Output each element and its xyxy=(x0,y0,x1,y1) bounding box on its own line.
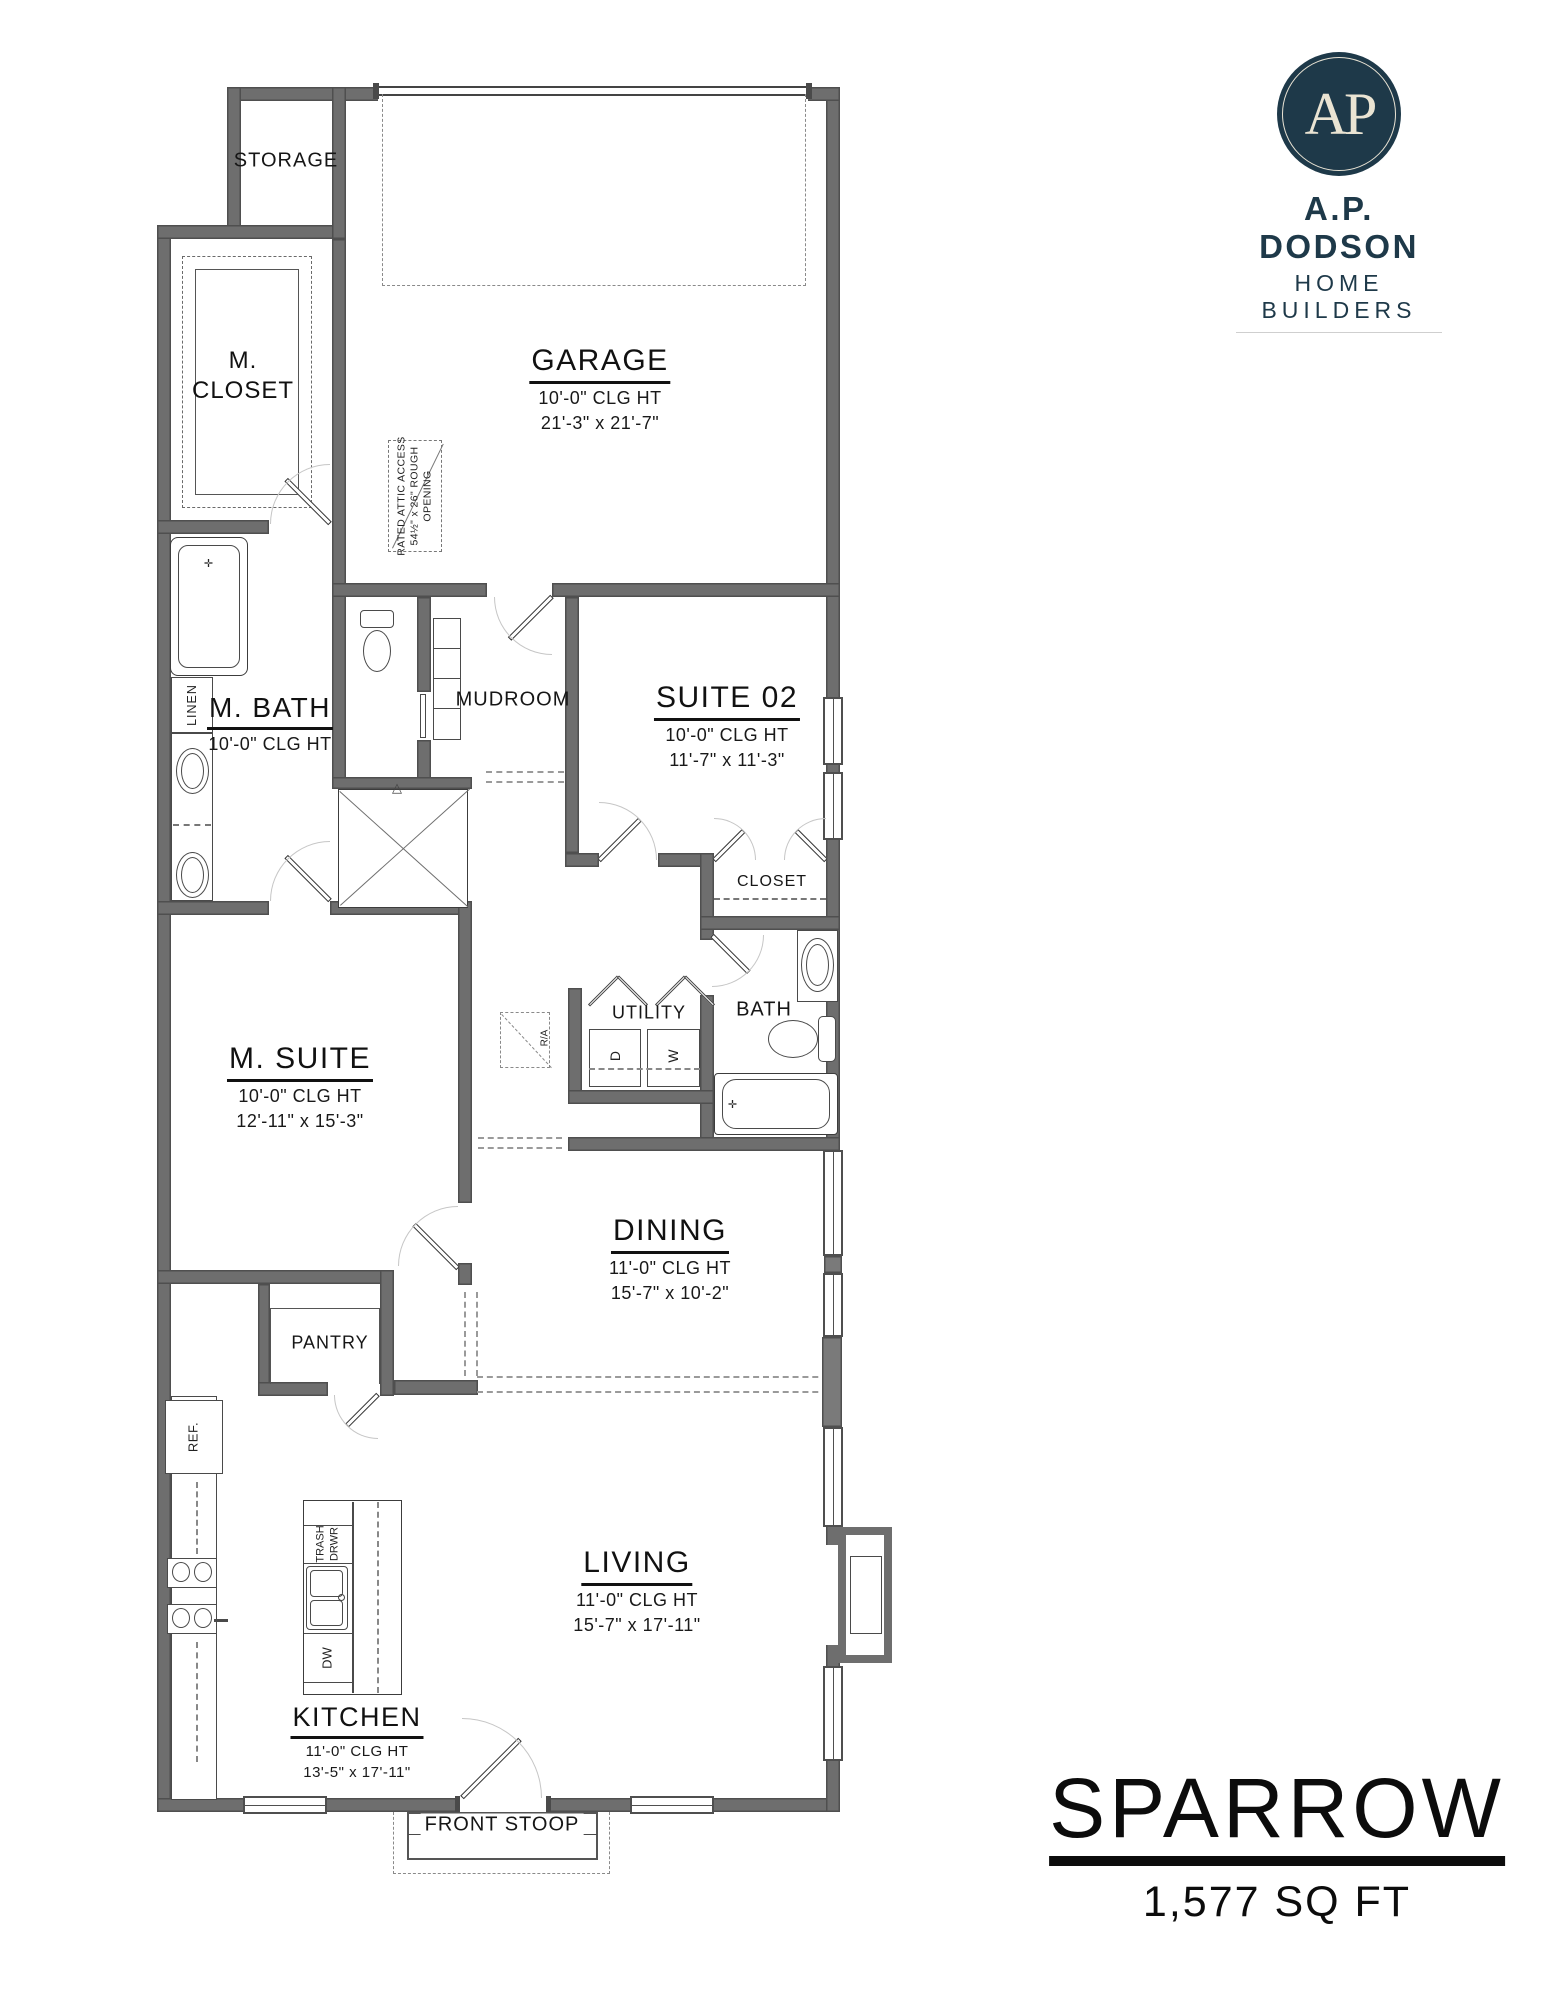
wall-utility-left xyxy=(568,988,582,1104)
storage-label: STORAGE xyxy=(234,150,338,173)
plan-title-underline xyxy=(1049,1856,1505,1866)
dining-window-2 xyxy=(823,1273,843,1337)
living-label: LIVING 11'-0" CLG HT 15'-7" x 17'-11" xyxy=(573,1546,700,1636)
kitchen-dining-dash2 xyxy=(476,1292,478,1376)
plan-title-block: SPARROW 1,577 SQ FT xyxy=(1049,1766,1505,1927)
dishwasher-label: DW xyxy=(320,1647,335,1669)
kitchen-label: KITCHEN 11'-0" CLG HT 13'-5" x 17'-11" xyxy=(290,1702,423,1781)
dining-window-mullion xyxy=(824,1256,842,1273)
range-handle xyxy=(214,1619,228,1622)
right-wall-pier xyxy=(822,1337,842,1427)
range-burner-3 xyxy=(172,1608,190,1628)
wall-garage-bottom-left xyxy=(332,583,487,597)
msuite-dimensions: 12'-11" x 15'-3" xyxy=(227,1111,373,1132)
island-div-3 xyxy=(304,1633,352,1634)
living-ceiling: 11'-0" CLG HT xyxy=(573,1590,700,1611)
mbath-label: M. BATH 10'-0" CLG HT xyxy=(207,692,333,755)
bath-sink-inner xyxy=(806,944,829,986)
trash-label-line2: DRWR xyxy=(328,1525,342,1562)
kitchen-ceiling: 11'-0" CLG HT xyxy=(290,1743,423,1760)
dining-window-1 xyxy=(823,1150,843,1256)
mbath-sink-1-inner xyxy=(181,753,204,789)
wall-mbath-bottom-left xyxy=(157,901,269,915)
wall-bath-left-lower xyxy=(700,995,714,1151)
linen-label: LINEN xyxy=(185,684,199,726)
bath-tub-faucet-icon: ✛ xyxy=(727,1099,740,1108)
wall-suite02-bottom-a xyxy=(565,853,599,867)
wall-suite02-left xyxy=(565,597,579,853)
front-stoop-label: FRONT STOOP xyxy=(421,1814,584,1837)
island-div-4 xyxy=(304,1682,352,1683)
island-dash xyxy=(377,1502,379,1693)
garage-label: GARAGE 10'-0" CLG HT 21'-3" x 21'-7" xyxy=(529,344,670,434)
mcloset-line1: M. xyxy=(192,346,294,376)
mbath-toilet-bowl xyxy=(363,630,391,672)
refrigerator-label: REF. xyxy=(186,1422,201,1452)
range-burner-4 xyxy=(194,1608,212,1628)
bath-label: BATH xyxy=(736,999,792,1022)
mudroom-hall-opening-dash1 xyxy=(486,771,564,773)
mbath-sink-2-inner xyxy=(181,857,204,893)
closet-door-right-arc xyxy=(784,818,826,860)
msuite-ceiling: 10'-0" CLG HT xyxy=(227,1086,373,1107)
bath-toilet-tank xyxy=(818,1016,836,1062)
bath-toilet-bowl xyxy=(768,1020,818,1058)
mbath-ceiling: 10'-0" CLG HT xyxy=(207,734,333,755)
range-burner-1 xyxy=(172,1562,190,1582)
dining-living-header-dash1 xyxy=(477,1376,838,1378)
wall-pantry-left xyxy=(258,1284,270,1396)
dining-living-header-dash2 xyxy=(477,1391,838,1393)
closet-door-left-arc xyxy=(714,818,756,860)
mbath-name: M. BATH xyxy=(207,692,333,730)
kitchen-cabinet-dash1 xyxy=(196,1482,198,1554)
dining-label: DINING 11'-0" CLG HT 15'-7" x 10'-2" xyxy=(609,1214,731,1304)
bath-door-arc xyxy=(712,935,764,987)
dining-ceiling: 11'-0" CLG HT xyxy=(609,1258,731,1279)
wall-shower-top xyxy=(332,777,472,789)
msuite-label: M. SUITE 10'-0" CLG HT 12'-11" x 15'-3" xyxy=(227,1042,373,1132)
dryer-label: D xyxy=(607,1051,623,1061)
suite02-label: SUITE 02 10'-0" CLG HT 11'-7" x 11'-3" xyxy=(654,681,800,771)
wall-mcloset-top xyxy=(157,225,346,239)
mudroom-label: MUDROOM xyxy=(456,689,571,712)
utility-label: UTILITY xyxy=(612,1003,686,1024)
fireplace-firebox xyxy=(850,1556,882,1634)
range-burner-2 xyxy=(194,1562,212,1582)
garage-dimensions: 21'-3" x 21'-7" xyxy=(529,413,670,434)
wall-closet-bottom xyxy=(700,916,840,930)
dining-name: DINING xyxy=(611,1214,729,1254)
wall-pantry-bottom xyxy=(258,1382,328,1396)
shower-head-marker: △ xyxy=(392,780,402,796)
company-tagline: HOME BUILDERS xyxy=(1236,270,1442,333)
closet-shelf-dashed xyxy=(714,898,826,900)
wall-msuite-bottom xyxy=(157,1270,394,1284)
company-name: A.P. DODSON xyxy=(1236,190,1442,266)
closet-label: CLOSET xyxy=(734,873,810,891)
hall-dining-dash2 xyxy=(478,1147,562,1149)
mudroom-hall-opening-dash2 xyxy=(486,781,564,783)
suite02-window-2 xyxy=(823,772,843,840)
logo-circle-icon: AP xyxy=(1277,52,1401,176)
wall-msuite-right xyxy=(458,901,472,1203)
mcloset-line2: CLOSET xyxy=(192,376,294,406)
attic-note-line3: OPENING xyxy=(422,436,435,555)
suite02-name: SUITE 02 xyxy=(654,681,800,721)
suite02-ceiling: 10'-0" CLG HT xyxy=(654,725,800,746)
kitchen-dimensions: 13'-5" x 17'-11" xyxy=(290,1764,423,1781)
garage-door-track-dashed xyxy=(382,94,806,286)
garage-mudroom-door-arc xyxy=(494,597,552,655)
mcloset-label: M. CLOSET xyxy=(192,346,294,406)
living-name: LIVING xyxy=(581,1546,692,1586)
island-sink-basin-2 xyxy=(310,1600,343,1626)
wall-mcloset-bottom xyxy=(157,520,269,534)
suite02-window-1 xyxy=(823,697,843,765)
wall-pantry-right xyxy=(380,1270,394,1396)
pantry-label: PANTRY xyxy=(291,1333,368,1354)
suite02-door-arc xyxy=(599,802,657,860)
island-split xyxy=(352,1502,354,1693)
wall-mcloset-right xyxy=(332,239,346,787)
kitchen-name: KITCHEN xyxy=(290,1702,423,1739)
mbath-door-arc xyxy=(270,841,330,901)
attic-note-line2: 54½" x 26" ROUGH xyxy=(408,436,421,555)
living-window-1 xyxy=(823,1427,843,1527)
mbath-toilet-tank xyxy=(360,610,394,628)
wall-dining-top xyxy=(568,1137,840,1151)
island-div-2 xyxy=(304,1563,352,1564)
cubby-shelf-2 xyxy=(433,678,461,679)
garage-ceiling: 10'-0" CLG HT xyxy=(529,388,670,409)
garage-name: GARAGE xyxy=(529,344,670,384)
utility-appliance-dash xyxy=(589,1068,700,1070)
living-dimensions: 15'-7" x 17'-11" xyxy=(573,1615,700,1636)
floor-plan-sheet: RATED ATTIC ACCESS 54½" x 26" ROUGH OPEN… xyxy=(0,0,1545,1999)
trash-label-line1: TRASH xyxy=(314,1525,328,1562)
plan-name: SPARROW xyxy=(1049,1766,1505,1850)
dining-dimensions: 15'-7" x 10'-2" xyxy=(609,1283,731,1304)
living-front-window xyxy=(630,1796,714,1814)
island-sink-faucet xyxy=(338,1594,345,1601)
island-sink-basin-1 xyxy=(310,1570,343,1597)
attic-note-line1: RATED ATTIC ACCESS xyxy=(395,436,408,555)
attic-access-note: RATED ATTIC ACCESS 54½" x 26" ROUGH OPEN… xyxy=(395,436,434,555)
suite02-dimensions: 11'-7" x 11'-3" xyxy=(654,750,800,771)
kitchen-front-window xyxy=(243,1796,327,1814)
kitchen-dining-dash1 xyxy=(464,1292,466,1376)
wall-top-storage xyxy=(227,87,382,101)
trash-drawer-label: TRASH DRWR xyxy=(314,1525,342,1562)
wall-garage-bottom-right xyxy=(552,583,840,597)
return-air-label: R/A xyxy=(540,1030,551,1047)
front-door-arc xyxy=(462,1718,542,1798)
mbath-vanity-divider xyxy=(173,824,211,826)
washer-label: W xyxy=(665,1049,681,1062)
wall-utility-bottom xyxy=(568,1090,714,1104)
garage-door-jamb-right xyxy=(806,83,812,99)
logo-ring xyxy=(1282,57,1396,171)
cubby-shelf-1 xyxy=(433,648,461,649)
pantry-door-arc xyxy=(334,1395,378,1439)
hall-dining-dash1 xyxy=(478,1137,562,1139)
msuite-door-arc xyxy=(398,1206,458,1266)
living-window-2 xyxy=(823,1666,843,1761)
plan-area: 1,577 SQ FT xyxy=(1049,1878,1505,1927)
kitchen-cabinet-dash2 xyxy=(196,1642,198,1762)
wall-kitchen-living-stub xyxy=(394,1380,478,1395)
faucet-icon: ✛ xyxy=(203,558,216,567)
garage-door-jamb-left xyxy=(373,83,379,99)
msuite-name: M. SUITE xyxy=(227,1042,373,1082)
wall-wc-right-upper xyxy=(417,597,431,692)
wc-pocket-door xyxy=(420,694,426,738)
builder-logo: AP A.P. DODSON HOME BUILDERS xyxy=(1236,52,1442,333)
